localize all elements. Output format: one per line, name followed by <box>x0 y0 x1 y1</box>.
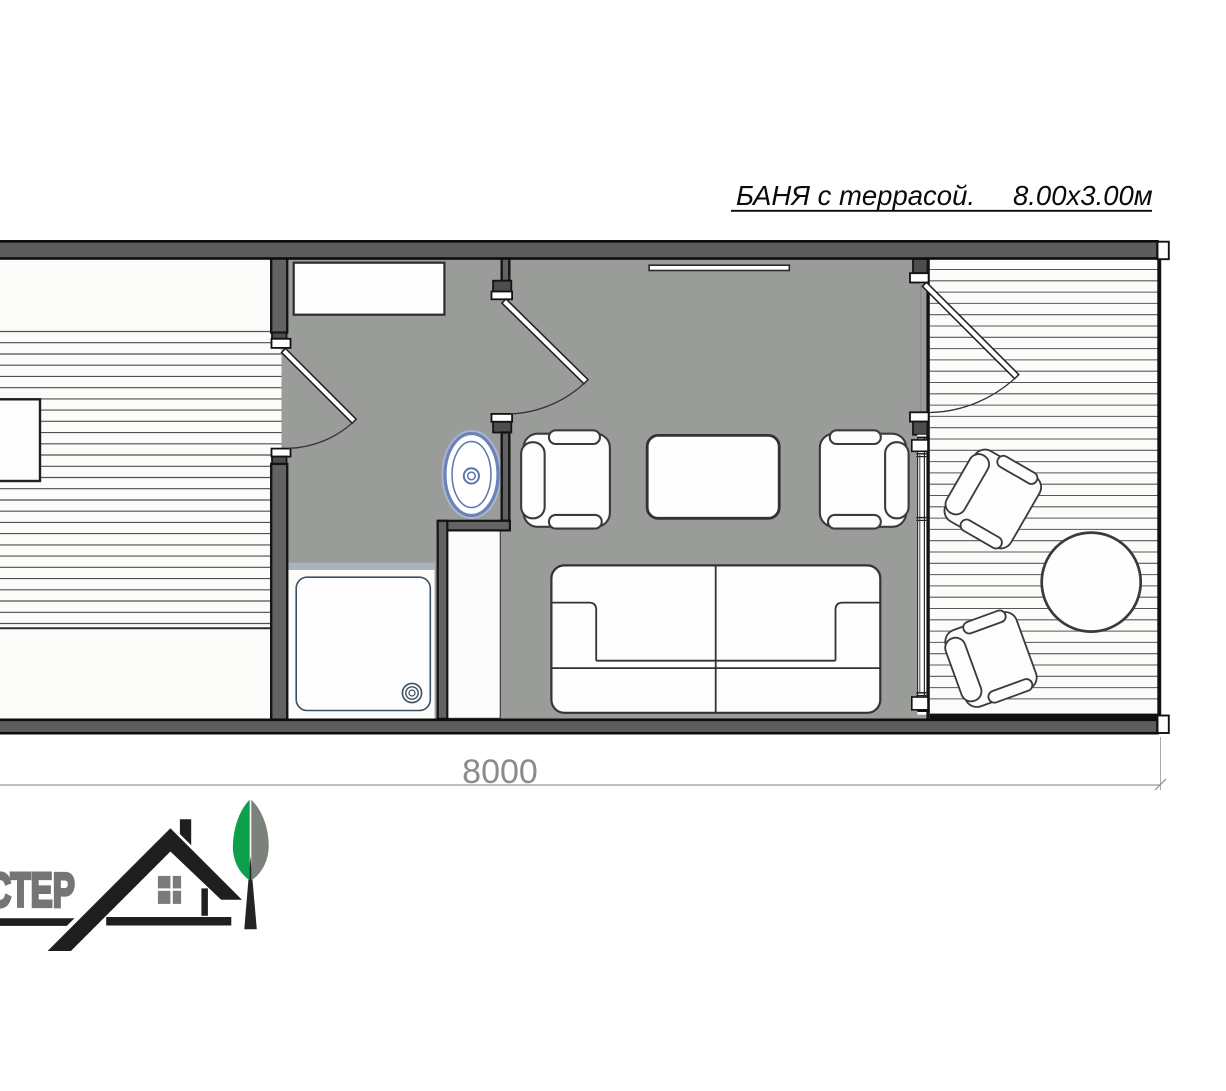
svg-text:СТЕР: СТЕР <box>0 862 75 917</box>
svg-text:8000: 8000 <box>462 753 538 791</box>
svg-text:8.00х3.00м: 8.00х3.00м <box>1013 180 1153 211</box>
svg-text:БАНЯ с террасой.: БАНЯ с террасой. <box>736 180 975 211</box>
